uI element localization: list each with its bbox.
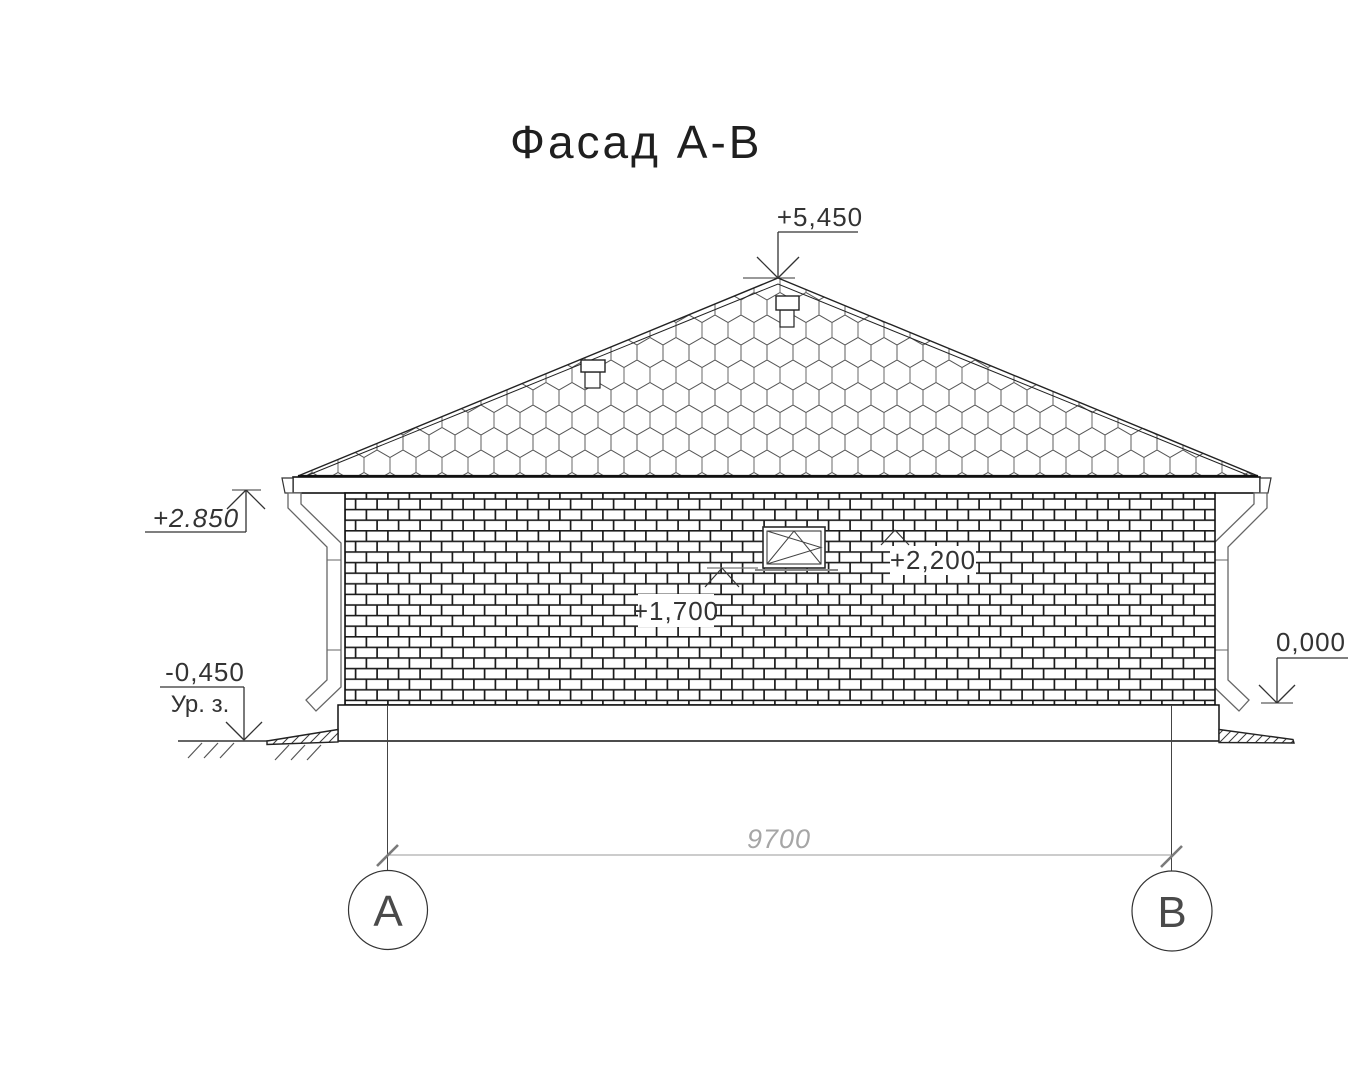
drawing-title: Фасад А-В <box>510 116 762 168</box>
level-window-head-label: +2,200 <box>890 545 976 575</box>
level-mark-floor <box>1259 658 1348 703</box>
level-window-sill-label: +1,700 <box>633 596 719 626</box>
window <box>755 527 838 570</box>
level-eaves-label: +2.850 <box>153 503 239 533</box>
level-mark-peak <box>743 232 858 278</box>
downspout-left <box>288 493 341 711</box>
level-peak-label: +5,450 <box>777 202 863 232</box>
axis-letter-a: А <box>373 887 403 936</box>
brick-wall <box>345 493 1215 705</box>
span-dimension-value: 9700 <box>747 824 811 854</box>
plinth <box>338 705 1219 741</box>
gutter-endcap-right <box>1260 478 1271 493</box>
blind-area-right <box>1219 730 1294 744</box>
fascia-board <box>282 477 1271 493</box>
facade-drawing-sheet: Фасад А-В <box>0 0 1350 1080</box>
level-ground-label: -0,450 <box>165 657 245 687</box>
level-floor-label: 0,000 <box>1276 627 1346 657</box>
ground-level-caption: Ур. з. <box>171 691 230 718</box>
gutter-endcap-left <box>282 478 293 493</box>
facade-elevation-svg: Фасад А-В <box>0 0 1350 1080</box>
blind-area-left <box>267 730 338 745</box>
axis-letter-b: В <box>1157 888 1186 937</box>
axis-grid: 9700 А В <box>349 705 1213 951</box>
downspout-right <box>1214 493 1267 711</box>
ground-hatch-left <box>188 743 321 760</box>
